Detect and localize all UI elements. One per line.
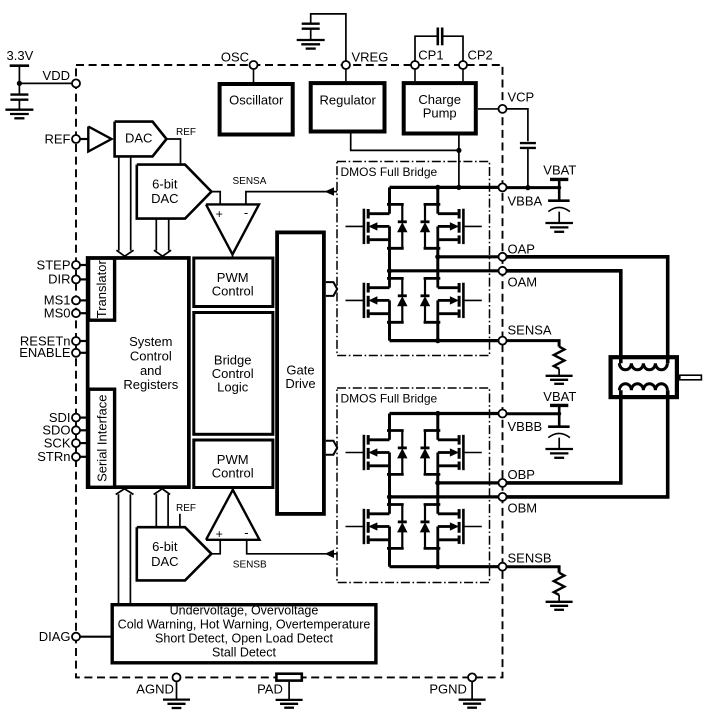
svg-text:DMOS Full Bridge: DMOS Full Bridge (341, 165, 438, 179)
svg-text:PGND: PGND (429, 681, 467, 696)
svg-text:-: - (244, 525, 248, 540)
svg-text:PWMControl: PWMControl (212, 452, 254, 481)
svg-text:+: + (216, 207, 223, 221)
svg-text:3.3V: 3.3V (7, 48, 34, 63)
svg-text:OSC: OSC (221, 50, 249, 65)
svg-text:REF: REF (176, 127, 196, 138)
svg-text:VBBB: VBBB (508, 419, 543, 434)
svg-text:VBAT: VBAT (543, 163, 576, 178)
svg-text:STEP: STEP (37, 257, 71, 272)
svg-text:CP2: CP2 (468, 47, 493, 62)
svg-text:ChargePump: ChargePump (418, 92, 461, 120)
svg-text:VDD: VDD (43, 68, 70, 83)
svg-text:SENSA: SENSA (508, 323, 552, 338)
svg-text:VCP: VCP (508, 90, 535, 105)
svg-text:SENSA: SENSA (233, 176, 267, 187)
svg-text:DIR: DIR (48, 272, 70, 287)
svg-text:Translator: Translator (94, 260, 109, 319)
svg-text:BridgeControlLogic: BridgeControlLogic (212, 353, 254, 395)
svg-text:MS0: MS0 (44, 306, 71, 321)
svg-text:PWMControl: PWMControl (212, 270, 254, 299)
svg-text:GateDrive: GateDrive (285, 363, 315, 392)
svg-text:-: - (244, 205, 248, 220)
svg-text:CP1: CP1 (418, 47, 443, 62)
svg-text:SENSB: SENSB (233, 560, 267, 571)
svg-text:SystemControlandRegisters: SystemControlandRegisters (123, 334, 178, 392)
svg-text:STRn: STRn (37, 449, 70, 464)
svg-text:AGND: AGND (136, 681, 174, 696)
svg-text:DAC: DAC (125, 131, 152, 146)
svg-text:Oscillator: Oscillator (229, 92, 284, 107)
svg-text:6-bitDAC: 6-bitDAC (151, 539, 178, 569)
svg-text:+: + (216, 527, 223, 541)
svg-text:DIAG: DIAG (39, 629, 71, 644)
svg-text:VBBA: VBBA (508, 194, 543, 209)
svg-text:REF: REF (45, 131, 71, 146)
svg-text:OAP: OAP (508, 242, 535, 257)
svg-text:Regulator: Regulator (320, 93, 377, 108)
svg-text:OBP: OBP (508, 467, 535, 482)
svg-text:OAM: OAM (508, 274, 538, 289)
svg-text:Serial Interface: Serial Interface (94, 394, 109, 481)
svg-text:ENABLE: ENABLE (19, 345, 71, 360)
svg-text:DMOS Full Bridge: DMOS Full Bridge (341, 392, 438, 406)
svg-text:SENSB: SENSB (508, 551, 552, 566)
svg-text:PAD: PAD (257, 682, 283, 697)
svg-text:OBM: OBM (508, 501, 538, 516)
svg-text:VREG: VREG (352, 50, 389, 65)
svg-text:REF: REF (176, 503, 196, 514)
svg-text:VBAT: VBAT (543, 389, 576, 404)
svg-text:6-bitDAC: 6-bitDAC (151, 177, 178, 207)
